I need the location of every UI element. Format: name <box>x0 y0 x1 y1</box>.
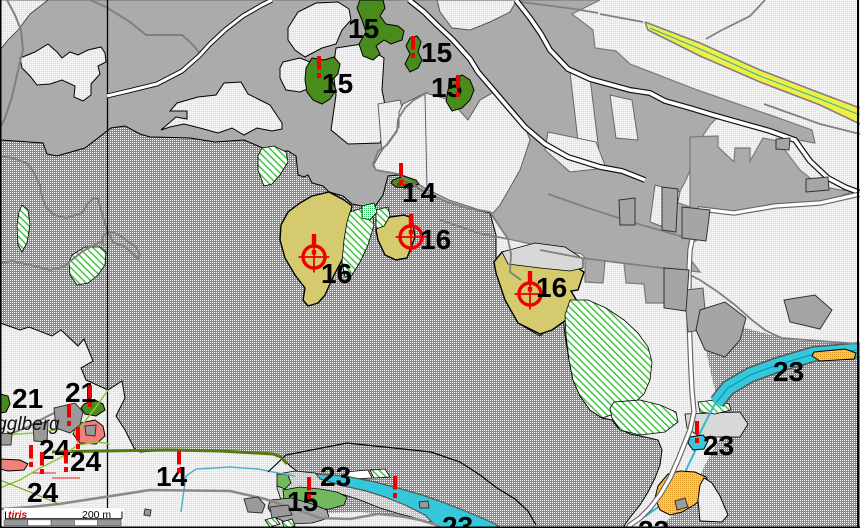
svg-text:16: 16 <box>321 258 352 289</box>
svg-text:16: 16 <box>420 224 451 255</box>
svg-text:15: 15 <box>287 486 318 517</box>
svg-text:23: 23 <box>773 356 804 387</box>
svg-text:14: 14 <box>402 177 439 208</box>
svg-text:igglberg: igglberg <box>0 414 60 435</box>
svg-text:15: 15 <box>322 68 353 99</box>
svg-text:23: 23 <box>320 461 351 492</box>
svg-text:16: 16 <box>536 272 567 303</box>
svg-text:24: 24 <box>70 446 102 477</box>
svg-text:23: 23 <box>703 430 734 461</box>
svg-text:21: 21 <box>12 383 43 414</box>
svg-text:15: 15 <box>348 13 379 44</box>
svg-text:24: 24 <box>27 477 59 508</box>
svg-text:14: 14 <box>156 461 188 492</box>
svg-text:15: 15 <box>421 37 452 68</box>
